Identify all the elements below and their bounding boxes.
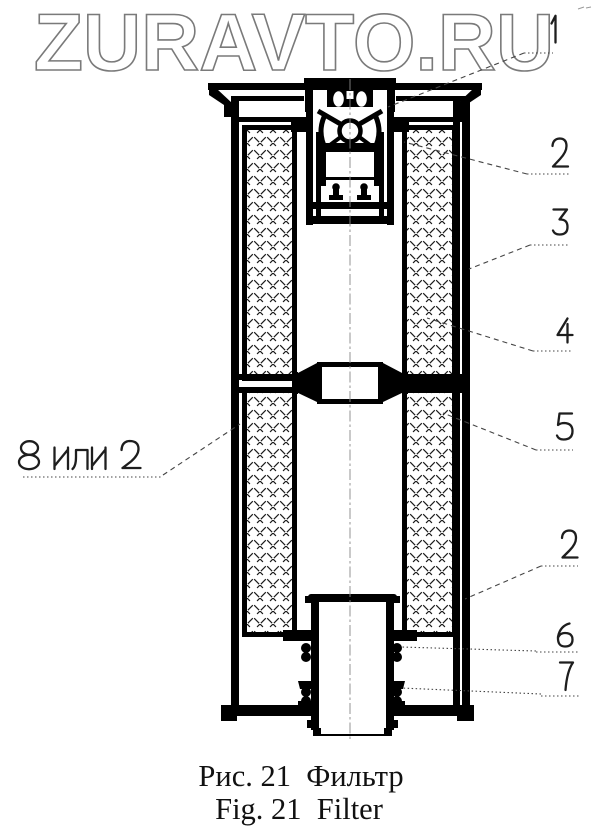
svg-text:Рис. 21 Фильтр: Рис. 21 Фильтр bbox=[198, 759, 403, 793]
svg-text:ZURAVTO.RU: ZURAVTO.RU bbox=[34, 0, 554, 88]
svg-text:Fig. 21 Filter: Fig. 21 Filter bbox=[215, 792, 383, 826]
